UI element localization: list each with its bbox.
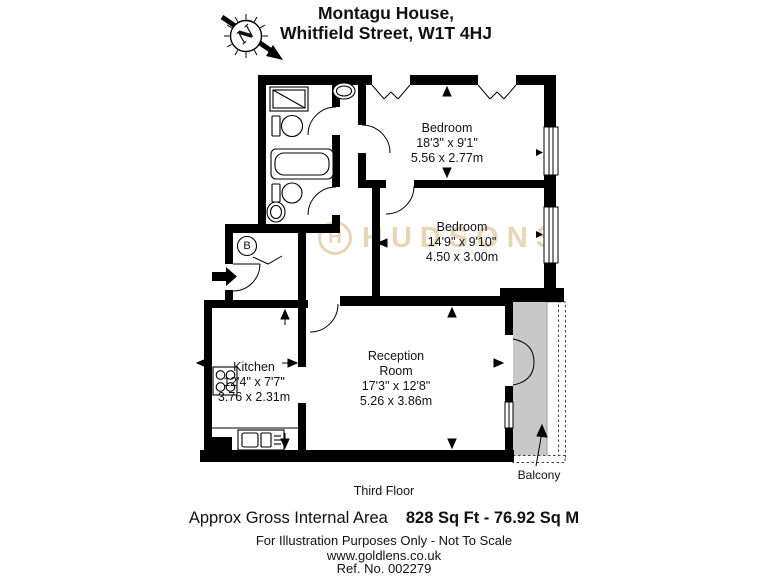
bedroom2-imperial: 14'9" x 9'10" [426, 235, 498, 250]
kitchen-name: Kitchen [218, 360, 290, 375]
bedroom1-metric: 5.56 x 2.77m [411, 151, 483, 166]
top-window-2 [478, 85, 516, 99]
kitchen-metric: 3.76 x 2.31m [218, 390, 290, 405]
bedroom2-door [386, 186, 414, 214]
entrance-arrow-icon [212, 267, 237, 286]
basin2-icon [267, 202, 285, 222]
bedroom2-window [536, 207, 558, 263]
bedroom2-metric: 4.50 x 3.00m [426, 250, 498, 265]
toilet2-icon [272, 183, 302, 203]
cupboard-label: B [243, 240, 250, 252]
bathroom1-door [308, 107, 336, 135]
address-line1: Montagu House, [280, 3, 492, 23]
reception-window [505, 402, 513, 428]
balcony-label: Balcony [518, 468, 561, 482]
kitchen-imperial: 12'4" x 7'7" [218, 375, 290, 390]
reception-name2: Room [360, 364, 432, 379]
bedroom1-imperial: 18'3" x 9'1" [411, 136, 483, 151]
address-line2: Whitfield Street, W1T 4HJ [280, 23, 492, 43]
reception-name1: Reception [360, 349, 432, 364]
reception-label: Reception Room 17'3" x 12'8" 5.26 x 3.86… [360, 349, 432, 409]
basin-icon [333, 83, 355, 99]
bedroom1-window [536, 127, 558, 175]
bathroom2-door [308, 187, 336, 215]
disclaimer-text: For Illustration Purposes Only - Not To … [256, 534, 512, 548]
floorplan-page: H HUDSONS [0, 0, 768, 576]
reference-text: Ref. No. 002279 [337, 562, 432, 576]
bedroom2-name: Bedroom [426, 220, 498, 235]
reception-door [310, 304, 338, 332]
bedroom1-label: Bedroom 18'3" x 9'1" 5.56 x 2.77m [411, 121, 483, 166]
toilet-icon [272, 116, 303, 137]
reception-imperial: 17'3" x 12'8" [360, 379, 432, 394]
bathtub-icon [271, 149, 333, 179]
kitchen-label: Kitchen 12'4" x 7'7" 3.76 x 2.31m [218, 360, 290, 405]
bedroom1-door [362, 125, 390, 153]
shower-icon [270, 87, 308, 111]
bedroom1-name: Bedroom [411, 121, 483, 136]
page-title: Montagu House, Whitfield Street, W1T 4HJ [280, 3, 492, 43]
cupboard-door [253, 256, 282, 264]
bedroom2-label: Bedroom 14'9" x 9'10" 4.50 x 3.00m [426, 220, 498, 265]
area-value: 828 Sq Ft - 76.92 Sq M [406, 509, 579, 527]
entry-door [233, 264, 260, 291]
area-summary: Approx Gross Internal Area828 Sq Ft - 76… [189, 509, 579, 528]
area-label: Approx Gross Internal Area [189, 509, 388, 527]
floor-label: Third Floor [354, 484, 414, 498]
top-window-1 [372, 85, 410, 99]
reception-metric: 5.26 x 3.86m [360, 394, 432, 409]
